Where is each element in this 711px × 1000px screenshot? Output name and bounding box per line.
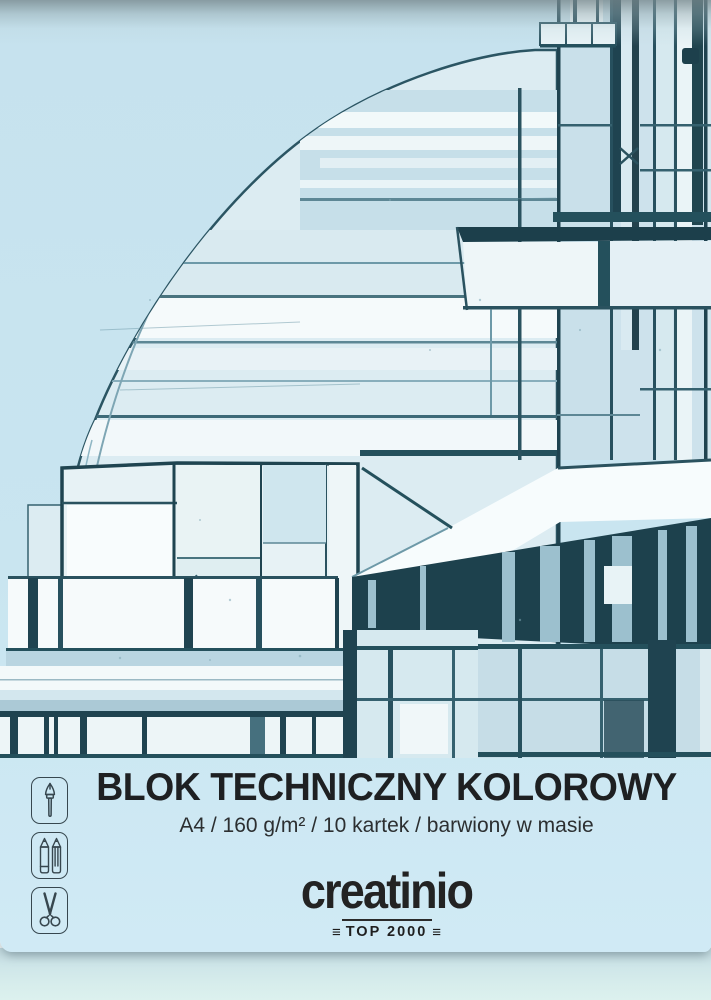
architecture-sketch [0, 0, 711, 758]
brand-badge: ≡ TOP 2000 ≡ [62, 925, 711, 940]
product-title: BLOK TECHNICZNY KOLOROWY [75, 768, 698, 808]
badge-bars-right: ≡ [432, 926, 441, 940]
pad-cover: BLOK TECHNICZNY KOLOROWY A4 / 160 g/m² /… [0, 0, 711, 952]
brand-logo: creatinio [94, 866, 678, 916]
paper-stack-edge [0, 948, 711, 1000]
cover-info-panel: BLOK TECHNICZNY KOLOROWY A4 / 160 g/m² /… [0, 760, 711, 952]
cover-text-column: BLOK TECHNICZNY KOLOROWY A4 / 160 g/m² /… [62, 760, 711, 940]
product-specs: A4 / 160 g/m² / 10 kartek / barwiony w m… [62, 813, 711, 839]
badge-bars-left: ≡ [332, 926, 341, 940]
brand-divider [342, 919, 432, 921]
badge-label: TOP 2000 [346, 925, 428, 940]
product-cover-photo: BLOK TECHNICZNY KOLOROWY A4 / 160 g/m² /… [0, 0, 711, 1000]
